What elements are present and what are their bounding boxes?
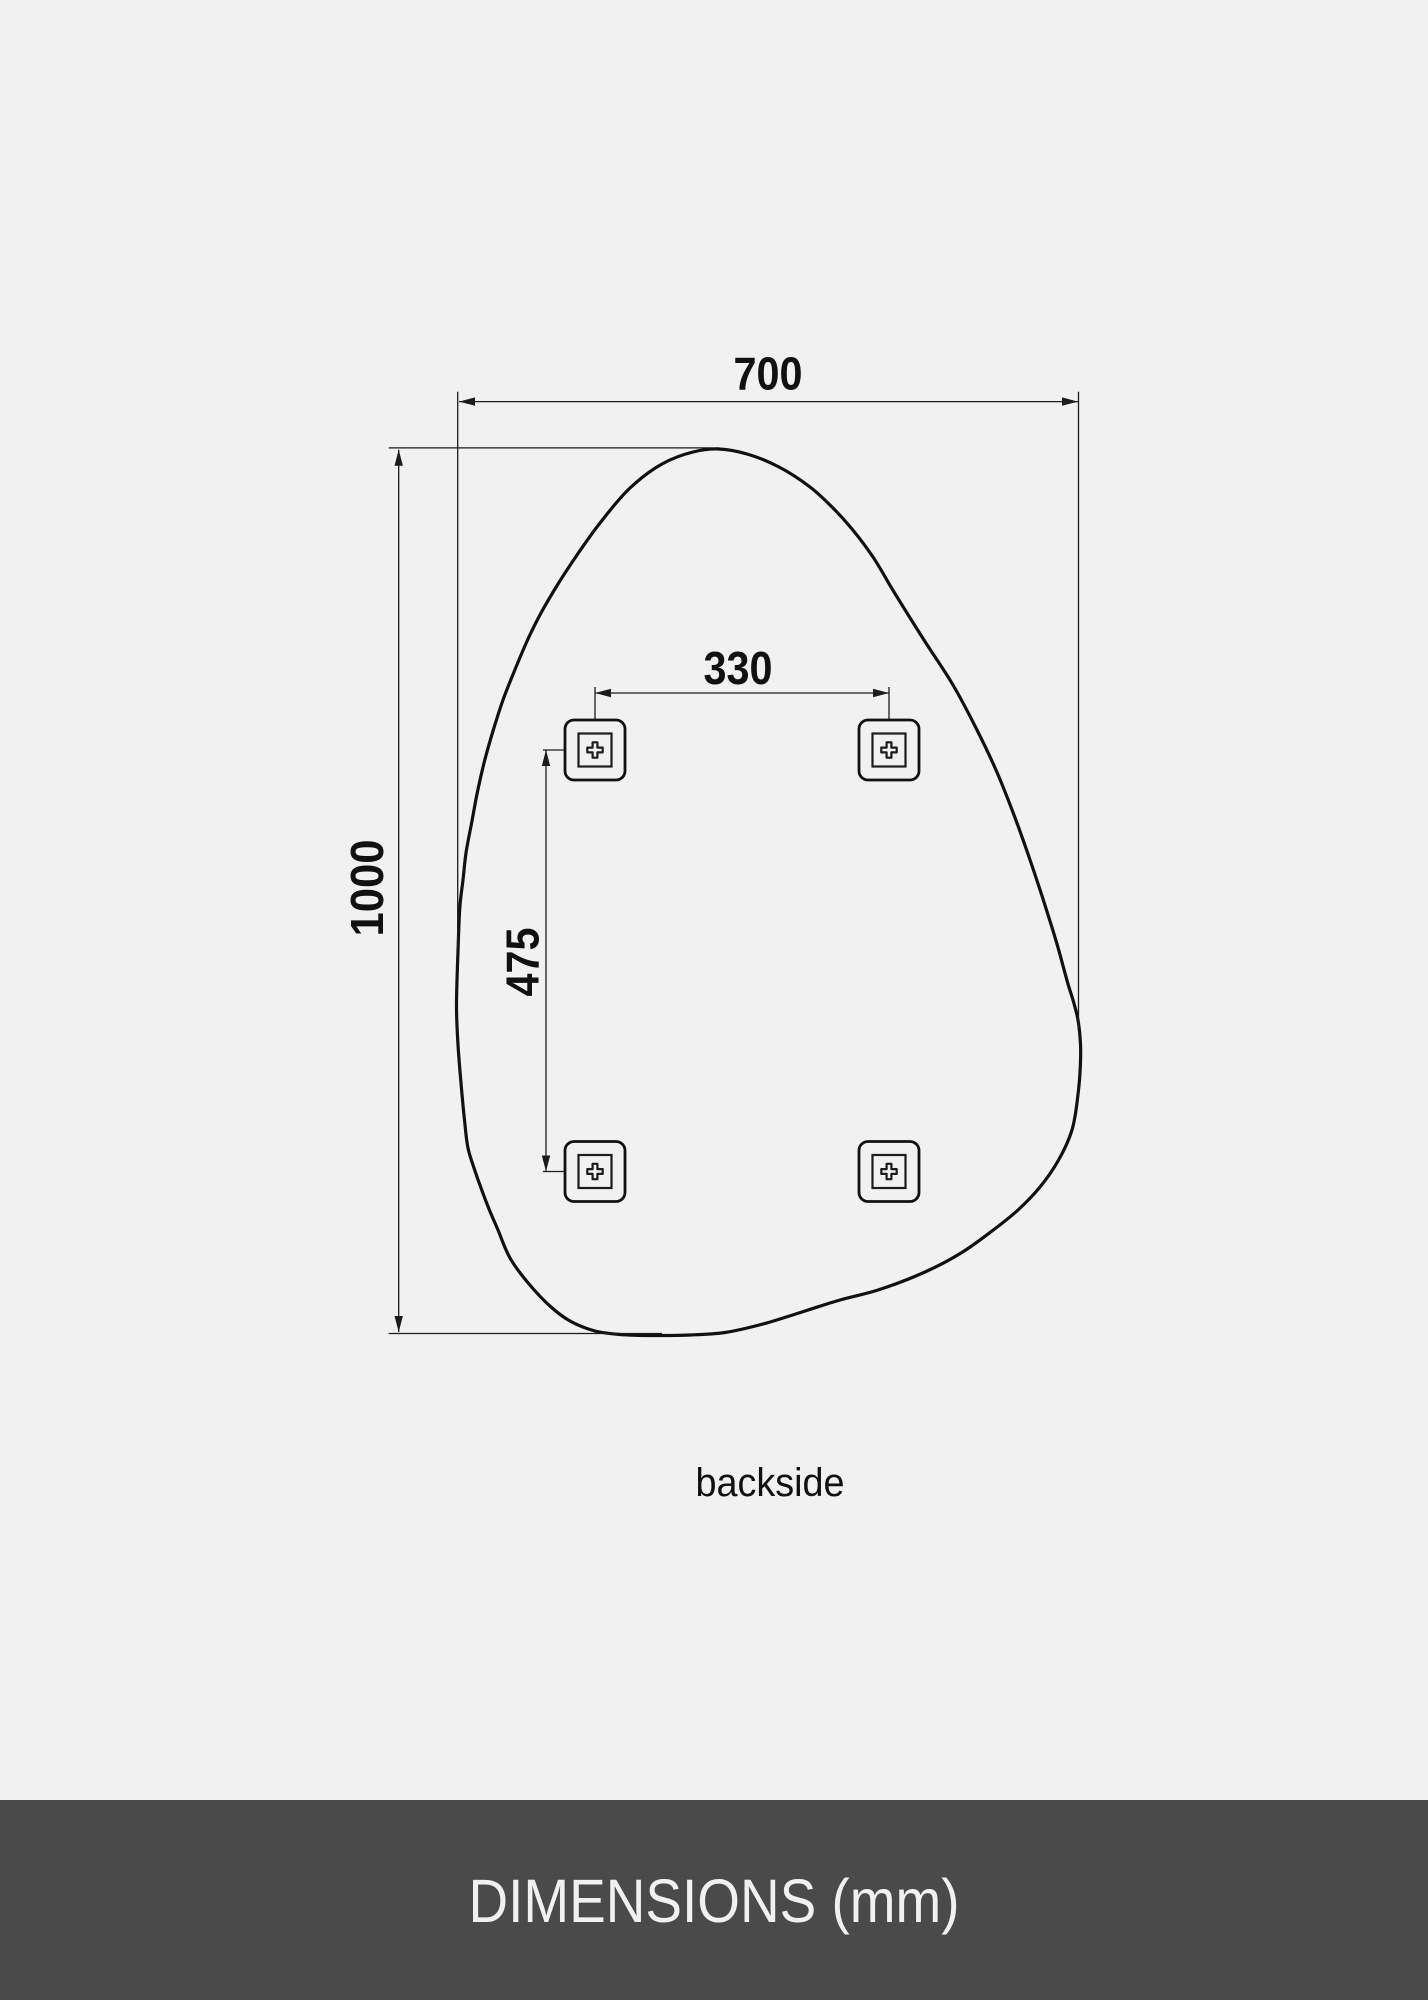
svg-text:475: 475	[497, 928, 549, 997]
svg-text:DIMENSIONS (mm): DIMENSIONS (mm)	[469, 1867, 960, 1935]
svg-text:330: 330	[704, 642, 773, 694]
svg-text:700: 700	[734, 348, 803, 400]
svg-text:backside: backside	[696, 1461, 845, 1505]
svg-text:1000: 1000	[341, 840, 393, 937]
